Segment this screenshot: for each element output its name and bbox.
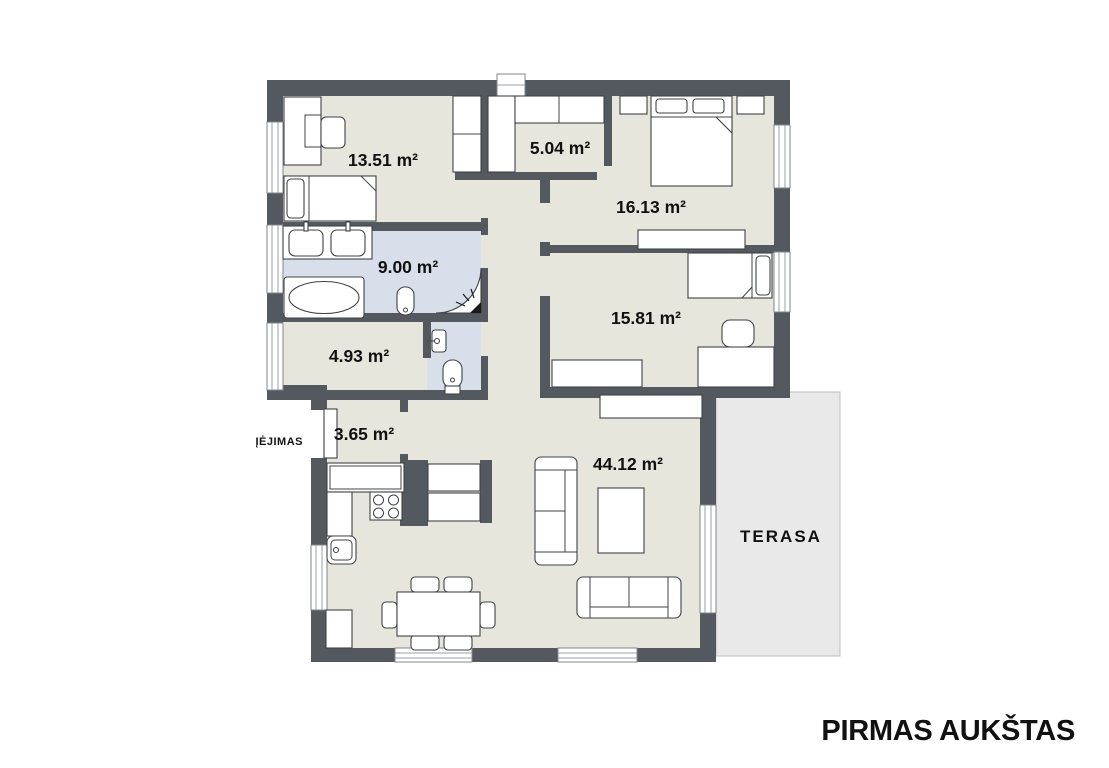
desk-chair — [321, 117, 345, 148]
chair — [411, 577, 439, 592]
vent-window-top — [497, 74, 525, 96]
wc-tap-knob — [435, 339, 440, 344]
sofa-vertical — [535, 457, 577, 565]
toilet-bowl — [397, 287, 414, 315]
kitchen-counter-left — [327, 492, 352, 536]
pillow — [287, 179, 304, 218]
dresser — [638, 230, 745, 249]
kitchen-counter-top — [327, 463, 404, 492]
terrace-label: TERASA — [740, 527, 822, 546]
wall-hall-east-lower — [540, 296, 550, 387]
room-area-label-bedroom-2: 16.13 m² — [616, 197, 686, 217]
window-bedroom1 — [267, 122, 283, 193]
floor-plan-drawing: 13.51 m² 5.04 m² 16.13 m² 9.00 m² 15.81 … — [0, 0, 1109, 768]
coffee-table — [598, 488, 644, 553]
entrance-label: ĮĖJIMAS — [255, 435, 303, 448]
room-area-label-bedroom-3: 15.81 m² — [611, 308, 681, 328]
room-area-label-entry-hall: 3.65 m² — [334, 424, 394, 444]
chair — [480, 602, 495, 628]
wall-corridor-west-shower — [481, 268, 488, 322]
chair — [411, 635, 439, 650]
tap-left — [304, 222, 308, 231]
window-utility — [267, 323, 283, 390]
tap-right — [346, 222, 350, 231]
window-bedroom3-east — [774, 252, 790, 312]
wall-outer-bottom — [311, 648, 716, 662]
pillow-right — [693, 99, 724, 113]
window-kitchen-west — [311, 545, 327, 610]
room-area-label-bedroom-1: 13.51 m² — [348, 150, 418, 170]
dresser — [552, 360, 642, 387]
kitchen-tap — [334, 548, 339, 553]
dining-table — [397, 592, 480, 636]
chair — [382, 602, 397, 628]
bathtub-basin — [289, 282, 359, 314]
terrace — [716, 392, 840, 656]
wall-utility-wc-divider — [423, 322, 431, 358]
wall-entry-hall-east-upper — [400, 395, 408, 412]
pantry-shelf-upper — [428, 464, 480, 491]
page-title: PIRMAS AUKŠTAS — [821, 713, 1075, 747]
wall-corridor-west-lower — [481, 356, 488, 400]
window-living-south — [558, 648, 637, 662]
room-area-label-bathroom: 9.00 m² — [378, 257, 438, 277]
wall-corridor-west-upper — [481, 93, 488, 172]
sofa-horizontal — [577, 577, 681, 618]
pantry-shelf-lower — [428, 493, 480, 521]
desk — [698, 347, 774, 387]
wall-kitchen-niche-east — [480, 460, 492, 523]
window-bathroom — [267, 225, 283, 293]
room-area-label-utility: 4.93 m² — [329, 346, 389, 366]
room-area-label-closet: 5.04 m² — [530, 138, 590, 158]
wall-closet-south — [455, 172, 597, 180]
chair — [444, 635, 472, 650]
window-bedroom2-east — [774, 125, 790, 188]
sideboard — [600, 395, 702, 418]
room-area-label-living: 44.12 m² — [593, 454, 663, 474]
closet-wardrobe-left — [488, 96, 515, 172]
wall-hall-east-mid — [540, 242, 550, 256]
floor-plan-page: 13.51 m² 5.04 m² 16.13 m² 9.00 m² 15.81 … — [0, 0, 1109, 768]
chair — [444, 577, 472, 592]
pillow — [756, 256, 770, 295]
nightstand-right — [737, 96, 764, 114]
sink-basin-left — [289, 230, 323, 256]
wc-toilet-bowl — [443, 360, 462, 388]
desk — [284, 97, 321, 165]
pillow-left — [656, 99, 687, 113]
desk-chair — [722, 320, 754, 347]
wall-hall-east-upper — [540, 180, 550, 203]
window-living-terrace — [700, 505, 716, 613]
sink-basin-right — [331, 230, 365, 256]
nightstand-left — [620, 96, 647, 114]
wall-corridor-west-mid — [481, 218, 488, 235]
kitchen-cabinet-low — [326, 610, 352, 648]
wall-outer-top — [267, 80, 790, 96]
wc-toilet-tank — [445, 386, 460, 394]
wall-closet-east — [604, 96, 612, 166]
